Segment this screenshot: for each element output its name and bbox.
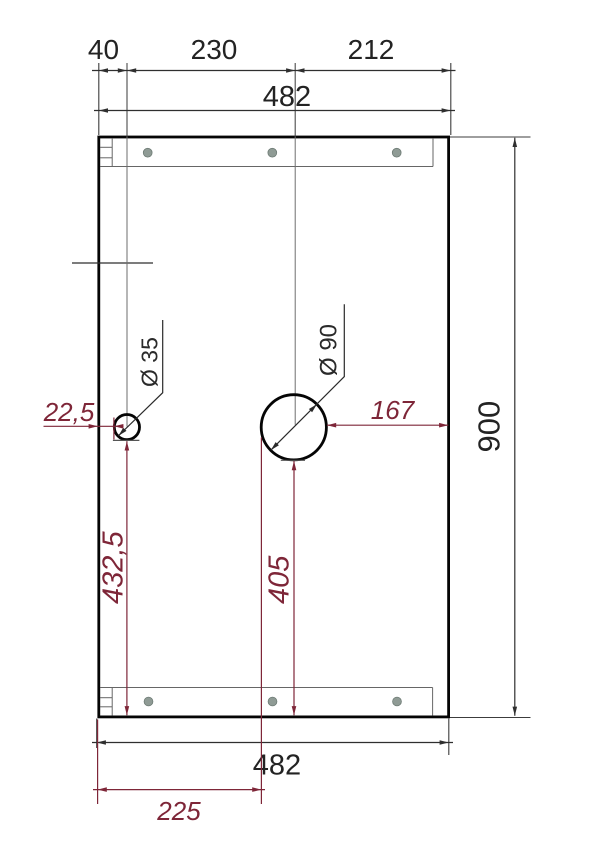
svg-text:482: 482	[263, 81, 311, 113]
svg-text:Ø 90: Ø 90	[316, 324, 343, 376]
svg-text:167: 167	[371, 395, 416, 425]
svg-text:405: 405	[264, 555, 296, 604]
svg-text:Ø 35: Ø 35	[137, 337, 163, 387]
svg-text:432,5: 432,5	[98, 531, 130, 604]
svg-text:230: 230	[191, 34, 238, 65]
svg-text:40: 40	[88, 34, 119, 65]
svg-text:212: 212	[348, 34, 395, 65]
svg-text:900: 900	[472, 401, 507, 453]
svg-text:482: 482	[253, 750, 301, 782]
svg-text:225: 225	[156, 796, 201, 826]
svg-text:22,5: 22,5	[43, 397, 95, 427]
